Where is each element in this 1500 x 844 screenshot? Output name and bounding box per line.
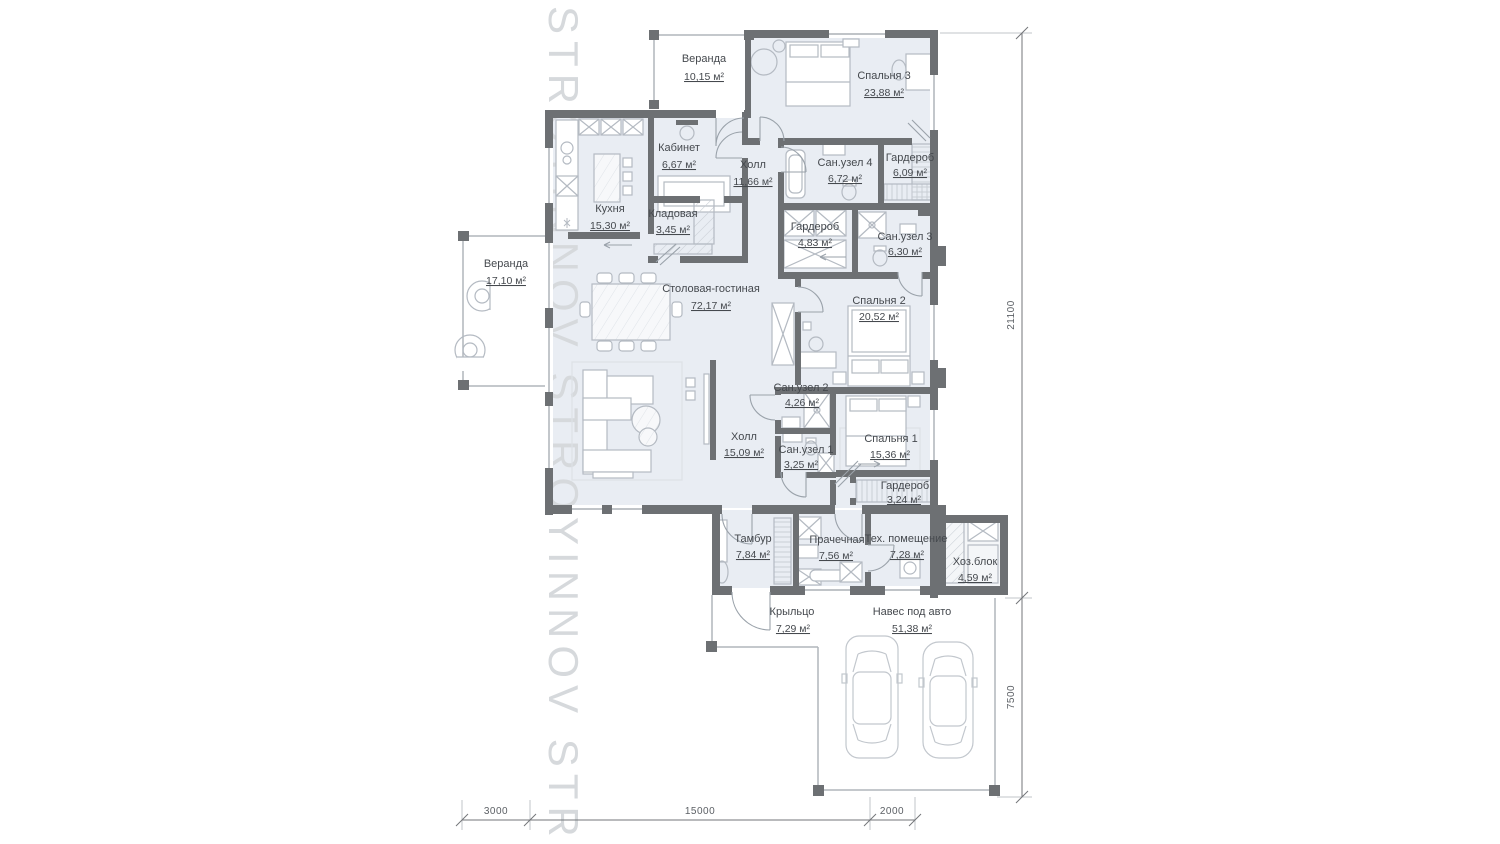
porch-outline	[712, 595, 818, 647]
label-bathroom2: Сан.узел 2	[773, 382, 828, 394]
dim-right-upper: 21100	[1006, 300, 1017, 330]
dim-bottom-center: 15000	[685, 806, 715, 817]
dining-table	[592, 284, 670, 340]
boiler	[900, 558, 920, 578]
label-technical: Тех. помещение	[865, 533, 948, 545]
label-study: Кабинет	[658, 142, 700, 154]
label-bathroom3: Сан.узел 3	[877, 231, 932, 243]
tv-partition-wall	[710, 360, 716, 460]
label-utility: Хоз.блок	[953, 556, 998, 568]
area-wardrobe483: 4,83 м²	[798, 237, 833, 249]
label-kitchen: Кухня	[595, 203, 624, 215]
door-entrance	[732, 592, 770, 630]
car-sedan	[919, 642, 977, 758]
dim-bottom-left: 3000	[484, 806, 508, 817]
floor-plan-drawing: STROYINNOV STROYINNOV STROYINNOV	[0, 0, 1500, 844]
label-wardrobe609: Гардероб	[886, 152, 934, 164]
sofa-section	[583, 398, 631, 420]
area-bathroom3: 6,30 м²	[888, 246, 923, 258]
area-living: 72,17 м²	[691, 300, 731, 312]
label-bedroom1: Спальня 1	[864, 433, 917, 445]
label-veranda-left: Веранда	[484, 258, 529, 270]
area-pantry: 3,45 м²	[656, 224, 691, 236]
closet	[774, 518, 791, 584]
area-bathroom1: 3,25 м²	[784, 459, 819, 471]
area-wardrobe324: 3,24 м²	[887, 494, 922, 506]
area-wardrobe609: 6,09 м²	[893, 167, 928, 179]
label-pantry: Кладовая	[648, 208, 697, 220]
dim-bottom-right: 2000	[880, 806, 904, 817]
label-carport: Навес под авто	[873, 606, 952, 618]
dim-right-lower: 7500	[1006, 685, 1017, 709]
label-hall-top: Холл	[740, 159, 766, 171]
label-vestibule: Тамбур	[734, 533, 771, 545]
tv	[704, 374, 709, 444]
area-kitchen: 15,30 м²	[590, 220, 630, 232]
label-porch: Крыльцо	[770, 606, 815, 618]
area-laundry: 7,56 м²	[819, 550, 854, 562]
area-bedroom1: 15,36 м²	[870, 449, 910, 461]
area-hall-main: 15,09 м²	[724, 447, 764, 459]
kitchen-wardrobes	[579, 119, 643, 135]
label-bathroom1: Сан.узел 1	[778, 444, 833, 456]
area-hall-top: 11,66 м²	[733, 176, 773, 188]
kitchen-island	[594, 154, 632, 202]
area-carport: 51,38 м²	[892, 623, 932, 635]
area-bathroom2: 4,26 м²	[785, 397, 820, 409]
area-bedroom2: 20,52 м²	[859, 311, 899, 323]
area-utility: 4,59 м²	[958, 572, 993, 584]
technical-room-equipment	[900, 558, 920, 578]
label-bedroom3: Спальня 3	[857, 70, 910, 82]
area-bedroom3: 23,88 м²	[864, 87, 904, 99]
label-veranda-top: Веранда	[682, 53, 727, 65]
label-wardrobe324: Гардероб	[881, 480, 929, 492]
tv-bedroom3	[843, 39, 859, 47]
label-wardrobe483: Гардероб	[791, 221, 839, 233]
sofa-section	[583, 450, 651, 472]
label-bathroom4: Сан.узел 4	[817, 157, 872, 169]
sink	[823, 144, 845, 155]
sink	[782, 417, 800, 428]
area-veranda-left: 17,10 м²	[486, 275, 526, 287]
area-study: 6,67 м²	[662, 159, 697, 171]
area-veranda-top: 10,15 м²	[684, 71, 724, 83]
car-suv	[842, 636, 902, 758]
floor-plan-page: STROYINNOV STROYINNOV STROYINNOV	[0, 0, 1500, 844]
label-laundry: Прачечная	[809, 534, 864, 546]
label-hall-main: Холл	[731, 431, 757, 443]
label-living: Столовая-гостиная	[662, 283, 760, 295]
label-bedroom2: Спальня 2	[852, 295, 905, 307]
desk-bedroom2	[800, 352, 836, 368]
area-porch: 7,29 м²	[776, 623, 811, 635]
hall-closet	[772, 303, 794, 365]
area-vestibule: 7,84 м²	[736, 549, 771, 561]
area-bathroom4: 6,72 м²	[828, 173, 863, 185]
sink	[798, 545, 818, 558]
area-technical: 7,28 м²	[890, 549, 925, 561]
kitchen-counter	[556, 120, 578, 230]
